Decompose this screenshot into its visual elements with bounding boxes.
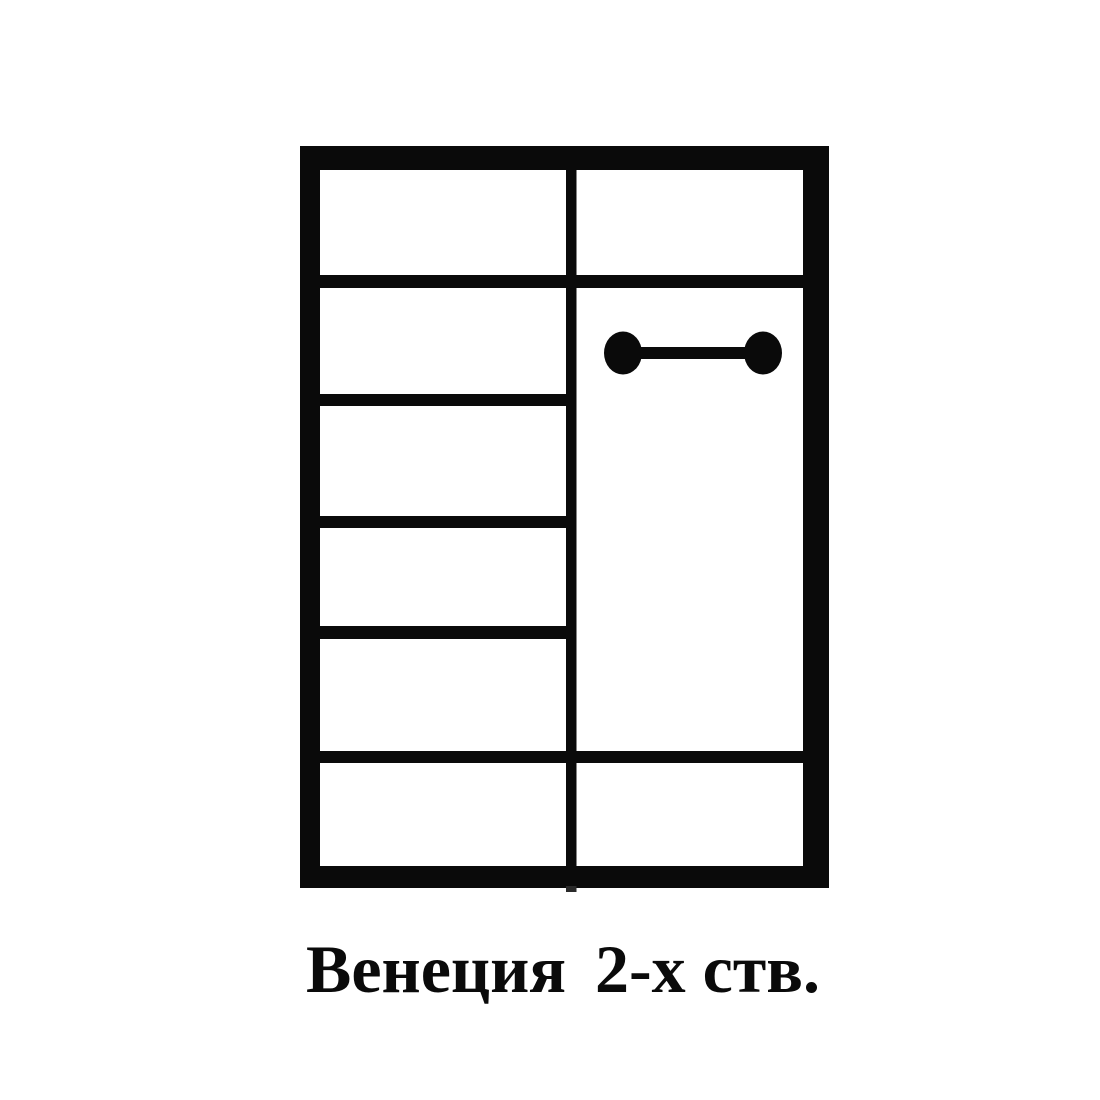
svg-text:Венеция: Венеция — [306, 931, 566, 1007]
svg-text:2-х ств.: 2-х ств. — [595, 931, 820, 1007]
